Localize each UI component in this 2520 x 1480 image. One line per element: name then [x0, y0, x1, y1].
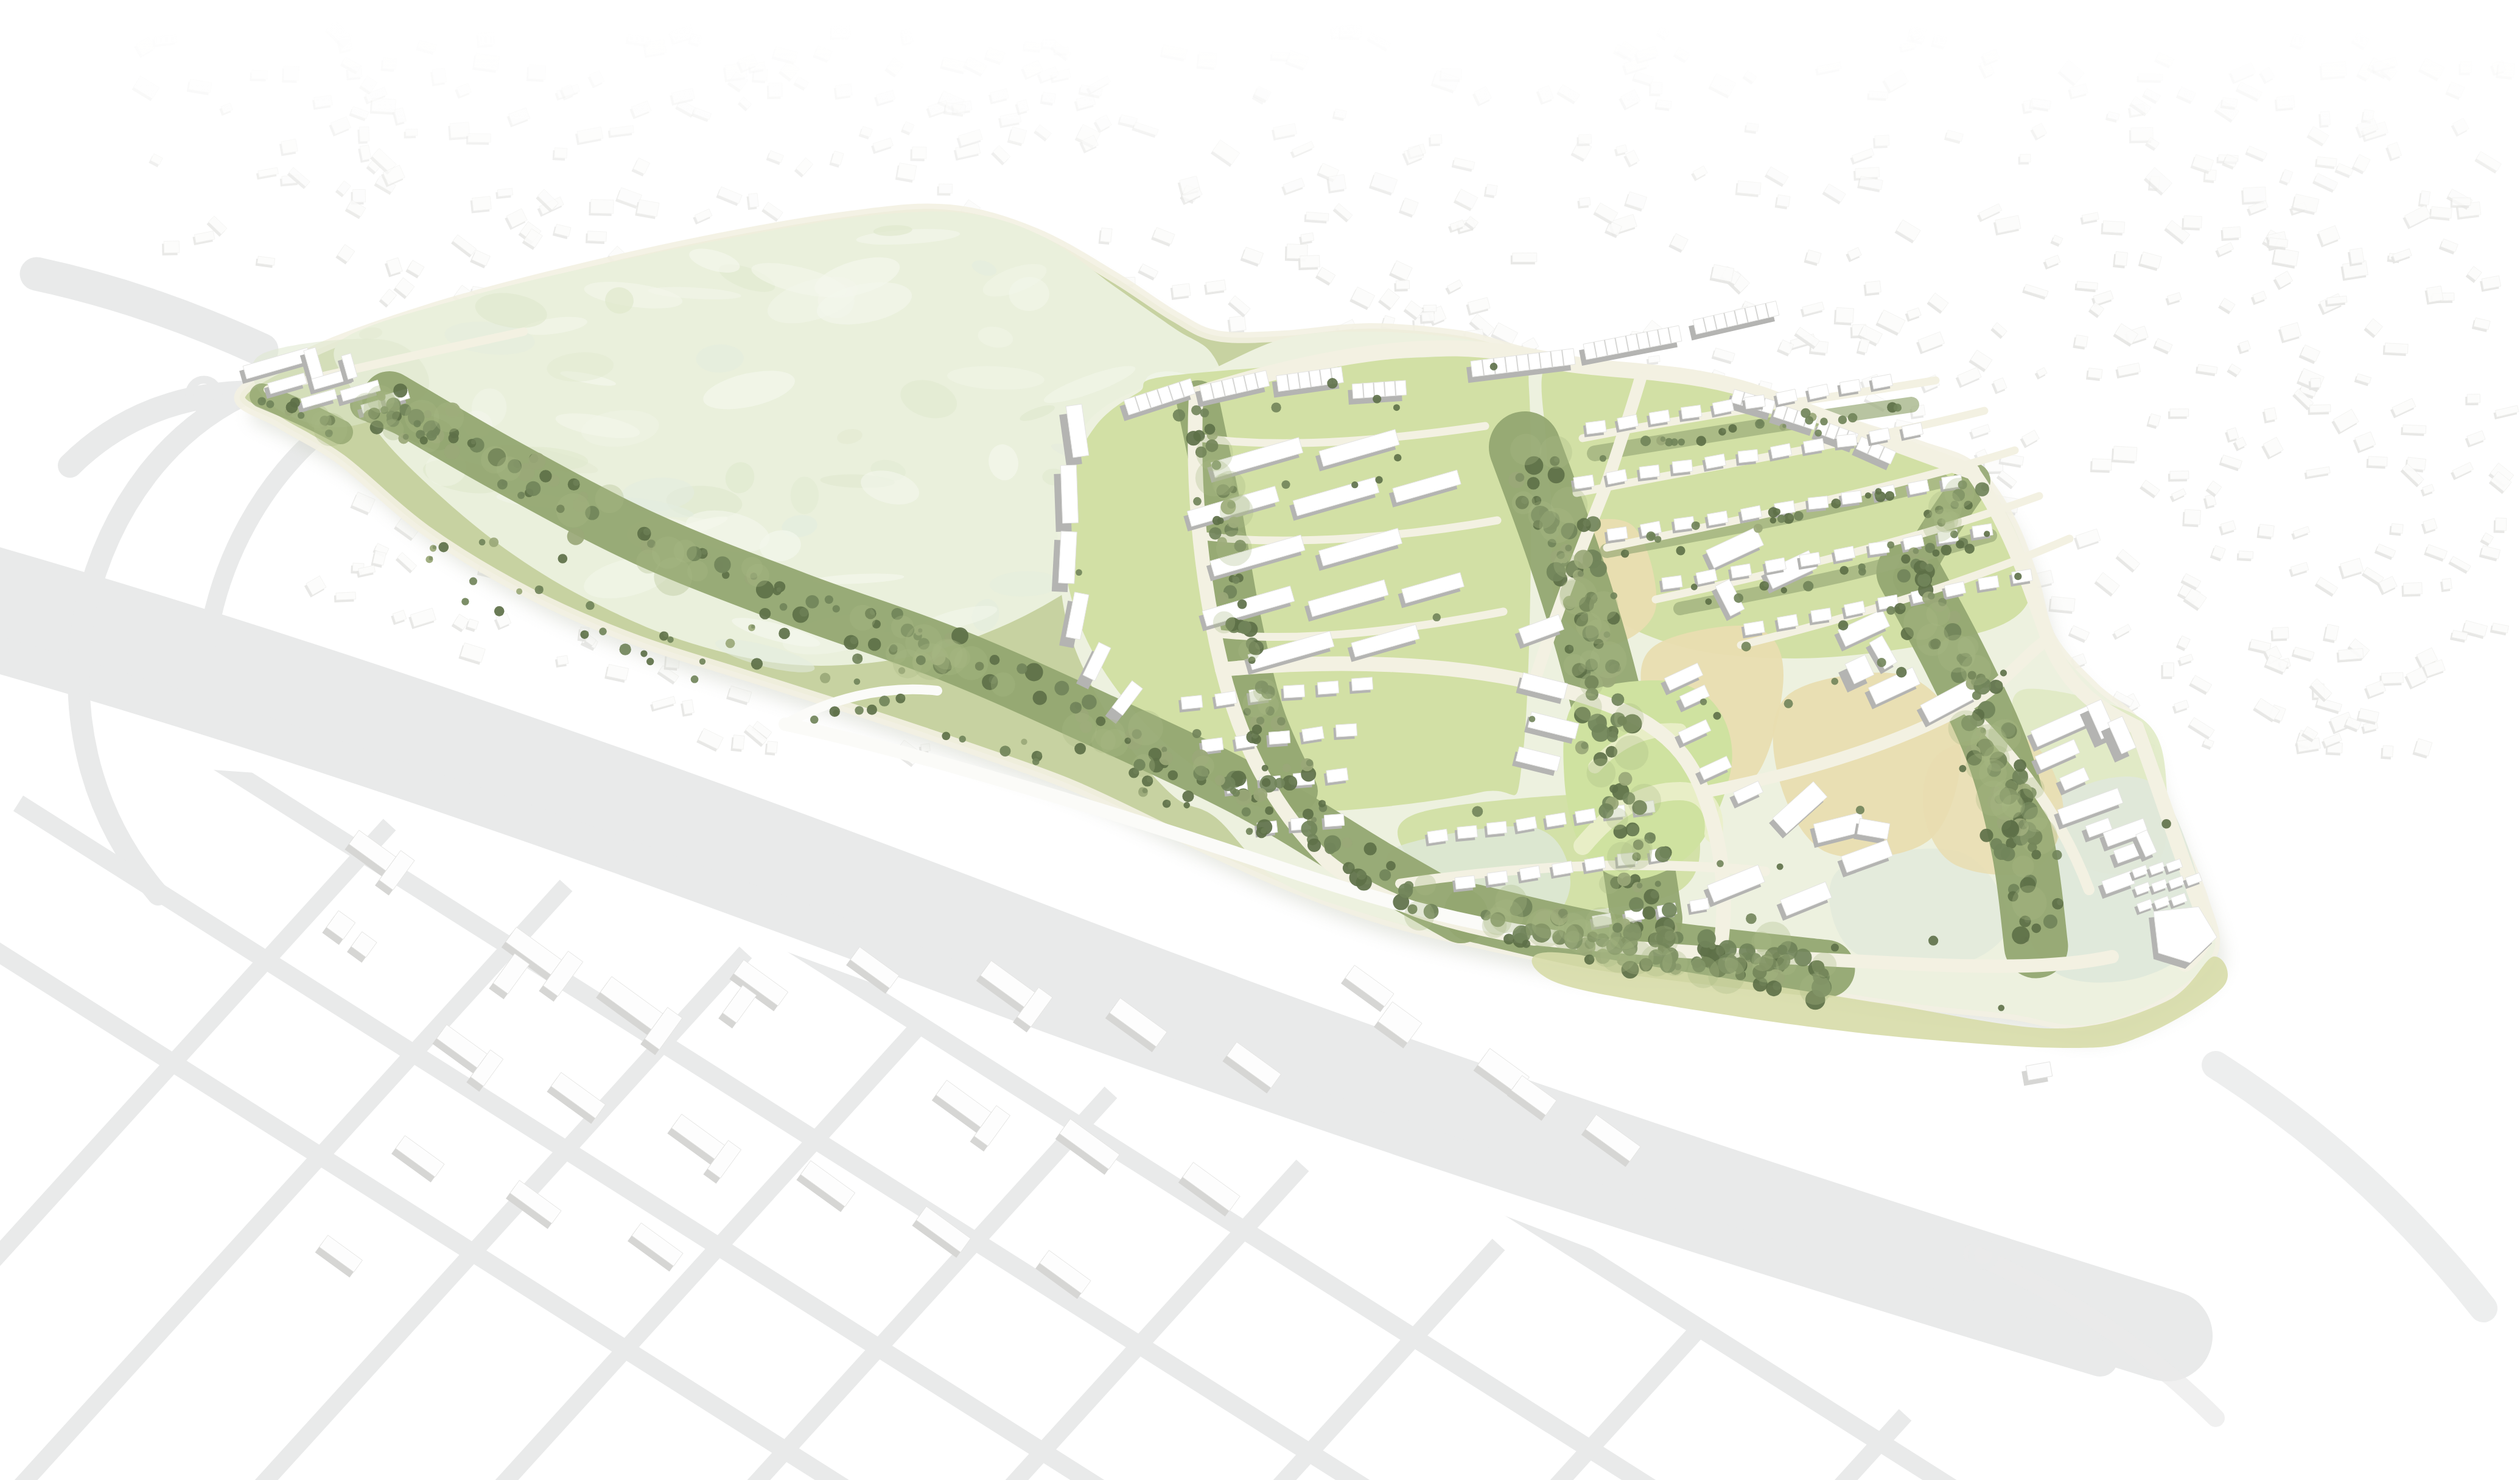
- masterplan-svg: [0, 0, 2520, 1480]
- top-fade: [0, 0, 2520, 158]
- masterplan-render: [0, 0, 2520, 1480]
